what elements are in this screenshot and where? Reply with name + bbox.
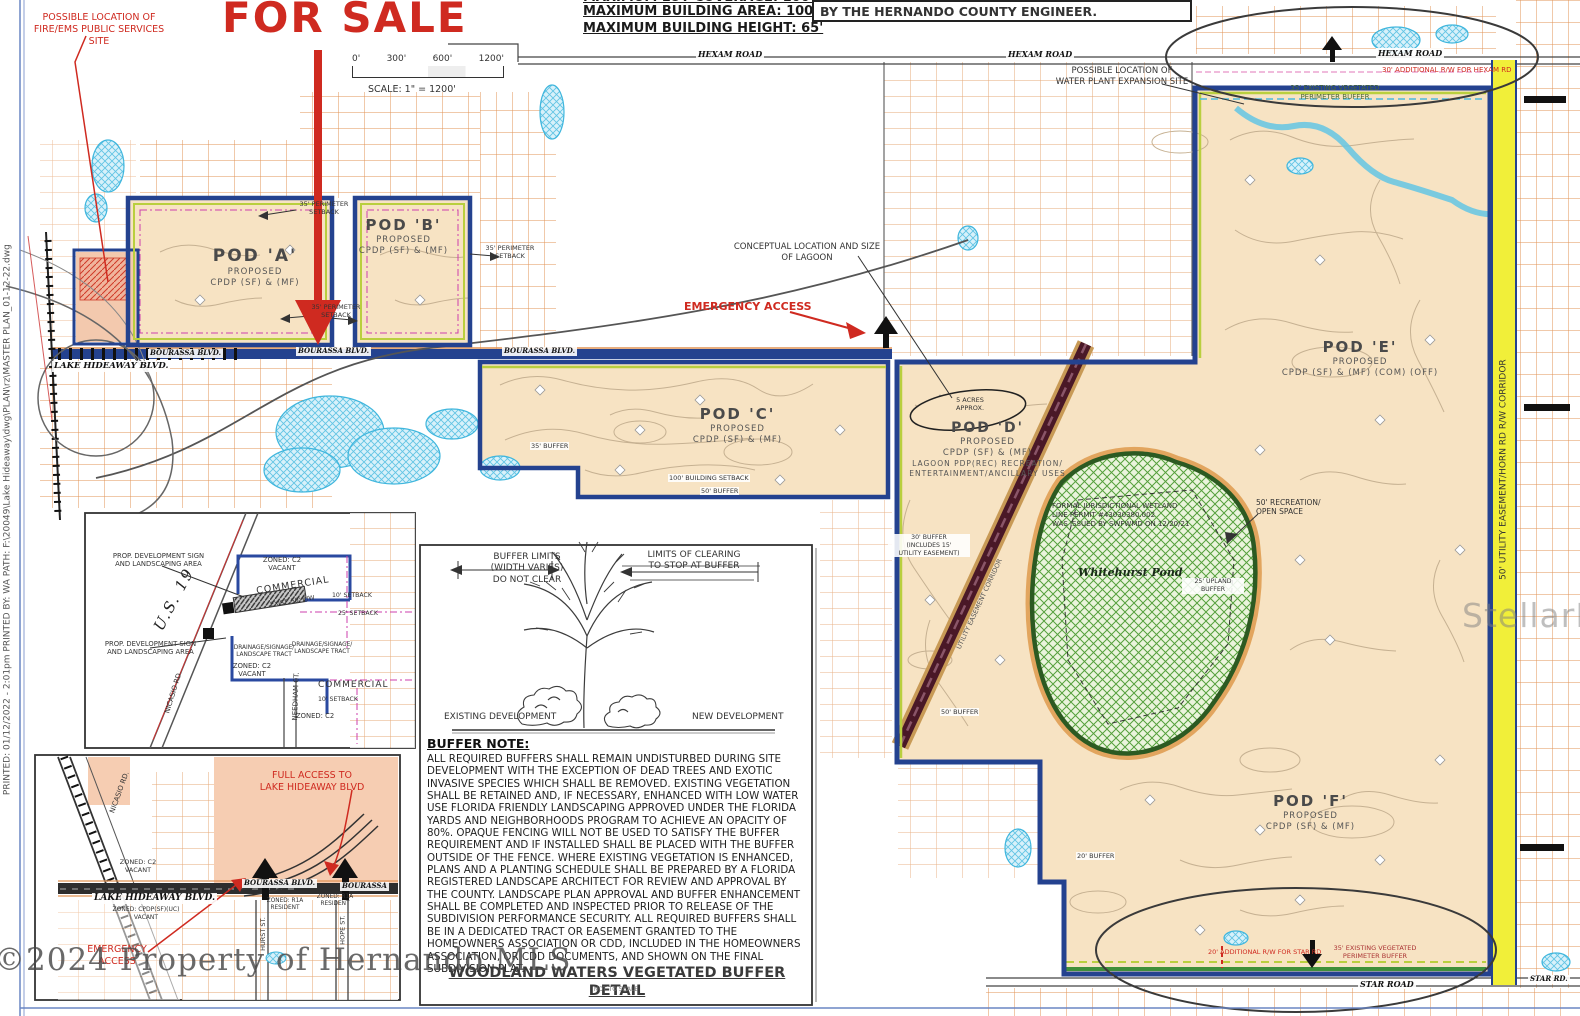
water-plant-note: POSSIBLE LOCATION OF WATER PLANT EXPANSI…: [1032, 66, 1212, 87]
scalebar-tick-600: 600': [433, 54, 453, 65]
inset1-prop-sign-2: PROP. DEVELOPMENT SIGN AND LANDSCAPING A…: [88, 640, 213, 657]
pod-d-sub1: PROPOSED: [880, 437, 1095, 447]
perimeter-setback-2: 35' PERIMETER SETBACK: [296, 303, 376, 319]
pod-d-sub4: ENTERTAINMENT/ANCILLARY USES: [880, 469, 1095, 478]
stellar-watermark: StellarMLS: [1462, 596, 1580, 635]
road-hexam-2: HEXAM ROAD: [1006, 49, 1074, 59]
pod-c-sub1: PROPOSED: [655, 424, 820, 434]
inset1-drainage-1: DRAINAGE/SIGNAGE/ LANDSCAPE TRACT: [232, 645, 296, 659]
pod-d-sub2: CPDP (SF) & (MF): [880, 448, 1095, 458]
building-setback-label: 100' BUILDING SETBACK: [668, 474, 750, 482]
yellow-band-label: 50' UTILITY EASEMENT/HORN RD R/W CORRIDO…: [1498, 120, 1509, 820]
buffer-existing-label: EXISTING DEVELOPMENT: [444, 712, 556, 723]
lagoon-acres: 5 ACRES APPROX.: [940, 396, 1000, 412]
inset1-setback10-2: 10' SETBACK: [318, 696, 358, 704]
fire-ems-note: POSSIBLE LOCATION OF FIRE/EMS PUBLIC SER…: [14, 12, 184, 48]
whitehurst-pond-label: Whitehurst Pond: [1076, 566, 1185, 580]
star-rw-note: 20' ADDITIONAL R/W FOR STAR RD: [1208, 948, 1321, 956]
road-star-rd: STAR RD.: [1528, 975, 1570, 984]
pod-e-sub2: CPDP (SF) & (MF) (COM) (OFF): [1265, 368, 1455, 378]
inset1-setback10-1: 10' SETBACK: [332, 592, 372, 600]
pod-d-sub3: LAGOON PDP(REC) RECREATION/: [880, 459, 1095, 468]
pod-c-label: POD 'C' PROPOSED CPDP (SF) & (MF): [655, 405, 820, 445]
buffer-50-c-label: 50' BUFFER: [700, 487, 739, 495]
buffer-30-utility-label: 30' BUFFER (INCLUDES 15' UTILITY EASEMEN…: [888, 534, 970, 557]
inset1-zoned-c2-3: ZONED: C2: [296, 712, 334, 720]
pod-c-title: POD 'C': [655, 405, 820, 423]
inset2-bourassa-blvd: BOURASSA BLVD.: [242, 879, 317, 888]
pod-a-sub2: CPDP (SF) & (MF): [185, 278, 325, 288]
pod-a-label: POD 'A' PROPOSED CPDP (SF) & (MF): [185, 246, 325, 288]
pod-f-title: POD 'F': [1228, 792, 1393, 810]
buffer-35-label: 35' BUFFER: [530, 442, 569, 450]
inset-us19: [85, 513, 415, 748]
scalebar-bar: [352, 66, 504, 78]
header-building-area: MAXIMUM BUILDING AREA: 100%: [583, 4, 826, 20]
star-buffer-note: 35' EXISTING VEGETATED PERIMETER BUFFER: [1320, 944, 1430, 960]
buffer-dim-right: LIMITS OF CLEARING TO STOP AT BUFFER: [624, 550, 764, 573]
wetland-note: FORMAL JURISDICTIONAL WETLAND LINE PERMI…: [1052, 502, 1247, 528]
engineer-note-box: BY THE HERNANDO COUNTY ENGINEER.: [812, 0, 1192, 22]
pod-e-label: POD 'E' PROPOSED CPDP (SF) & (MF) (COM) …: [1265, 338, 1455, 378]
road-star-road: STAR ROAD: [1358, 979, 1416, 989]
road-hexam-1: HEXAM ROAD: [696, 49, 764, 59]
hexam-buffer-note: 35' EXISTING VEGETATED PERIMETER BUFFER: [1280, 84, 1390, 102]
road-bourassa-2: BOURASSA BLVD.: [296, 347, 371, 356]
upland-buffer-label: 25' UPLAND BUFFER: [1182, 578, 1244, 594]
perimeter-setback-3: 35' PERIMETER SETBACK: [478, 244, 542, 260]
inset1-commercial-2: COMMERCIAL: [318, 680, 389, 691]
buffer-note-title: BUFFER NOTE:: [427, 736, 529, 752]
inset2-zoned-cpdp: ZONED: CPDP(SF)(UC) VACANT: [100, 906, 192, 921]
inset2-bourassa: BOURASSA: [340, 882, 389, 891]
inset1-needham-ct: NEEDHAM CT.: [291, 672, 301, 721]
road-lake-hideaway: LAKE HIDEAWAY BLVD.: [52, 361, 170, 372]
inset1-setback25: 25' SETBACK: [338, 610, 378, 618]
pod-b-sub1: PROPOSED: [336, 235, 471, 245]
pod-b-title: POD 'B': [336, 216, 471, 234]
conceptual-lagoon-note: CONCEPTUAL LOCATION AND SIZE OF LAGOON: [712, 242, 902, 263]
emergency-access-label: EMERGENCY ACCESS: [684, 300, 812, 314]
inset2-zoned-r1a-1: ZONED: R1A RESIDENT: [262, 898, 308, 912]
scalebar-label: SCALE: 1" = 1200': [368, 84, 456, 96]
pod-d-title: POD 'D': [880, 420, 1095, 436]
pod-d-label: POD 'D' PROPOSED CPDP (SF) & (MF) LAGOON…: [880, 420, 1095, 478]
inset2-zoned-r1a-2: ZONED: R1A RESIDENT: [312, 894, 358, 908]
buffer-50-d-label: 50' BUFFER: [940, 708, 979, 716]
scalebar-tick-300: 300': [387, 54, 407, 65]
buffer-new-label: NEW DEVELOPMENT: [692, 712, 784, 723]
pod-f-label: POD 'F' PROPOSED CPDP (SF) & (MF): [1228, 792, 1393, 832]
buffer-dim-left: BUFFER LIMITS (WIDTH VARIES) DO NOT CLEA…: [462, 552, 592, 586]
plot-stamp: PRINTED: 01/12/2022 - 2:01pm PRINTED BY:…: [2, 50, 13, 990]
pod-e-title: POD 'E': [1265, 338, 1455, 356]
pod-b-label: POD 'B' PROPOSED CPDP (SF) & (MF): [336, 216, 471, 256]
scalebar-tick-1200: 1200': [479, 54, 504, 65]
hernando-watermark: ©2024 Property of Hernando MLS: [0, 942, 571, 978]
buffer-20-label: 20' BUFFER: [1076, 852, 1115, 860]
pod-a-sub1: PROPOSED: [185, 267, 325, 277]
perimeter-setback-1: 35' PERIMETER SETBACK: [284, 200, 364, 216]
road-hexam-3: HEXAM ROAD: [1376, 48, 1444, 58]
inset2-hope-st: HOPE ST.: [339, 915, 347, 945]
recreation-label: 50' RECREATION/ OPEN SPACE: [1256, 498, 1371, 517]
scalebar-ticks: 0' 300' 600' 1200': [352, 54, 504, 65]
scalebar-tick-0: 0': [352, 54, 360, 65]
inset2-zoned-c2: ZONED: C2 VACANT: [108, 858, 168, 874]
inset1-zoned-c2-2: ZONED: C2 VACANT: [222, 662, 282, 679]
pod-f-sub2: CPDP (SF) & (MF): [1228, 822, 1393, 832]
header-building-height: MAXIMUM BUILDING HEIGHT: 65': [583, 21, 823, 37]
pod-f-sub1: PROPOSED: [1228, 811, 1393, 821]
pod-e-sub1: PROPOSED: [1265, 357, 1455, 367]
hexam-rw-note: 30' ADDITIONAL R/W FOR HEXAM RD: [1382, 66, 1511, 75]
road-bourassa-3: BOURASSA BLVD.: [502, 347, 577, 356]
inset1-drainage-2: DRAINAGE/SIGNAGE/ LANDSCAPE TRACT: [290, 642, 354, 656]
inset2-full-access: FULL ACCESS TO LAKE HIDEAWAY BLVD: [232, 770, 392, 794]
pod-c-sub2: CPDP (SF) & (MF): [655, 435, 820, 445]
inset1-zoned-c2-1: ZONED: C2 VACANT: [252, 556, 312, 573]
master-plan-page: MAXIMUM LOT COVERAGE: 100% MAXIMUM BUILD…: [0, 0, 1580, 1016]
road-bourassa-1: BOURASSA BLVD.: [148, 349, 223, 358]
pod-a-title: POD 'A': [185, 246, 325, 266]
buffer-not-to-scale: NOT TO SCALE: [556, 986, 676, 994]
pod-b-sub2: CPDP (SF) & (MF): [336, 246, 471, 256]
inset1-prop-sign-1: PROP. DEVELOPMENT SIGN AND LANDSCAPING A…: [96, 552, 221, 569]
inset2-lake-hideaway: LAKE HIDEAWAY BLVD.: [92, 893, 217, 904]
for-sale-label: FOR SALE: [222, 0, 468, 45]
